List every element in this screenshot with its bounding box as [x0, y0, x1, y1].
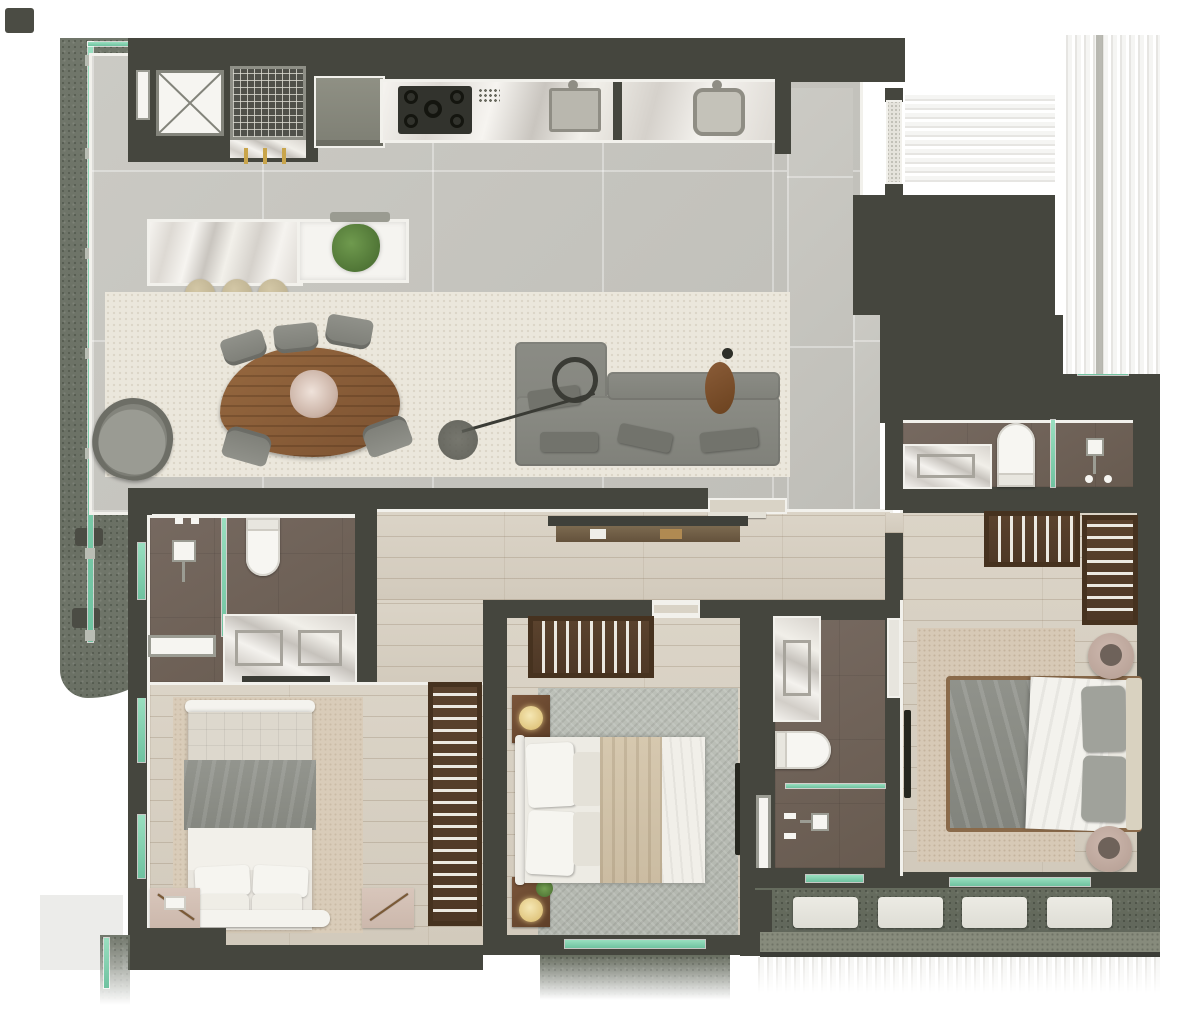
core-wall-block-b	[880, 315, 1063, 423]
bed1-quilt	[188, 712, 312, 762]
balcony-ledge	[760, 932, 1160, 952]
bedroom1-window	[138, 698, 145, 762]
bed2-pillow-small	[573, 812, 603, 866]
bed3-pillow	[1081, 685, 1127, 752]
master-tv	[904, 710, 911, 798]
hall-console-top	[548, 516, 748, 526]
table-lamp	[519, 706, 543, 730]
kitchen-sink-2	[693, 88, 745, 136]
bedroom2-west-wall	[483, 600, 507, 955]
kitchen-east-wall	[775, 56, 791, 154]
living-south-wall	[128, 488, 708, 514]
kitchen-tall-cabinet	[316, 78, 383, 146]
wall-niche	[136, 70, 150, 120]
shower-valve	[191, 518, 199, 524]
bedroom2-window	[565, 940, 705, 948]
bed2-pillow-small	[573, 752, 603, 806]
ensuite2-door	[887, 618, 901, 698]
master-west-wall	[885, 533, 903, 600]
shower-valve	[175, 518, 183, 524]
cooktop-controls	[478, 88, 500, 104]
bed1-duvet	[188, 828, 312, 870]
bed2-pillow	[525, 742, 576, 808]
fade-band-right	[1063, 35, 1160, 374]
round-side-table	[1088, 633, 1134, 679]
kitchen-sink-1	[549, 88, 601, 132]
lounger	[1047, 897, 1112, 928]
bed3-pillow	[1081, 755, 1127, 822]
bed2-headboard	[515, 735, 525, 885]
shower-head	[811, 813, 829, 831]
shower-fixture	[172, 540, 196, 562]
lounger	[793, 897, 858, 928]
entry-door	[886, 100, 902, 184]
decor-sphere	[722, 348, 733, 359]
counter-divider-wall	[613, 82, 622, 140]
ensuite2-vanity	[775, 618, 819, 720]
fade-band-right-line	[1096, 35, 1103, 374]
sofa-backrest	[607, 372, 780, 400]
table-flowers	[290, 370, 338, 418]
table-lamp	[519, 898, 543, 922]
bedroom1-south-wall-b	[226, 945, 483, 970]
hall-extension-floor	[375, 600, 483, 688]
island-marble	[150, 222, 300, 283]
cooktop	[398, 86, 472, 134]
bed2-throw	[600, 737, 662, 883]
toilet-tank	[997, 473, 1035, 487]
bedroom2-door-threshold	[652, 603, 700, 615]
shower-glass-screen	[786, 784, 885, 788]
bed2-duvet	[662, 737, 705, 883]
double-vanity	[225, 616, 355, 682]
shower-head	[1086, 438, 1104, 456]
faucet-1	[568, 80, 578, 90]
bedroom2-north-wall-b	[700, 600, 740, 618]
corridor-floor	[787, 88, 853, 518]
lounger	[878, 897, 943, 928]
bed1-pillow	[194, 865, 250, 898]
lounger	[962, 897, 1027, 928]
corner-wall-fragment	[5, 8, 34, 33]
shower-valve	[784, 833, 796, 839]
round-side-table	[1086, 826, 1132, 872]
facade-glass-top	[88, 42, 128, 46]
sofa-pillow	[540, 432, 598, 452]
core-wall-block-a	[853, 195, 1055, 315]
stub-glass	[104, 938, 109, 988]
arc-floor-lamp-shade	[552, 357, 598, 403]
barbecue-grill	[230, 66, 306, 140]
shower-niche	[756, 795, 771, 875]
bed1-headboard	[190, 910, 330, 927]
shower-valve	[1085, 475, 1093, 483]
hall-console-body	[556, 526, 740, 542]
toilet-tank	[775, 731, 787, 769]
bed1-pillow	[252, 865, 308, 898]
shower-glass-screen	[1051, 420, 1055, 487]
bathroom1-east-wall	[355, 500, 377, 688]
bathroom3-vanity	[905, 446, 990, 487]
bedside-mat	[362, 888, 414, 928]
bed3-headboard	[1126, 678, 1142, 830]
dining-chair	[273, 322, 320, 354]
oval-side-table	[705, 362, 735, 414]
shower-valve	[784, 813, 796, 819]
bedroom1-south-wall-a	[128, 928, 226, 970]
bedroom2-balcony-ledge	[540, 955, 730, 1000]
bathroom1-door-leaf	[242, 676, 330, 683]
bed2-pillow	[525, 810, 576, 876]
shower-stem	[1093, 456, 1096, 474]
shower-stem	[182, 562, 185, 582]
bedroom1-window	[138, 815, 145, 878]
bed1-gray-blanket	[184, 760, 316, 830]
master-doorway	[885, 513, 903, 533]
ensuite2-window	[806, 875, 863, 882]
master-wardrobe-a	[984, 511, 1080, 567]
arc-floor-lamp-base	[438, 420, 478, 460]
ensuite2-north-wall	[740, 600, 903, 620]
fade-band-bottom	[755, 957, 1160, 993]
grill-counter	[230, 140, 306, 158]
master-window	[950, 878, 1090, 886]
faucet-2	[712, 80, 722, 90]
bedside-mat	[150, 888, 200, 928]
bedroom2-wardrobe	[528, 616, 654, 678]
floor-plan	[0, 0, 1200, 1010]
terrace-planter	[72, 608, 100, 628]
bedroom1-wardrobe	[428, 682, 482, 926]
master-wardrobe-b	[1082, 515, 1138, 625]
island-tray	[330, 212, 390, 222]
wall-niche	[148, 635, 216, 657]
toilet-tank	[246, 518, 280, 531]
bathroom1-window	[138, 543, 145, 599]
shower-valve	[1104, 475, 1112, 483]
duct-shaft-x	[156, 70, 224, 136]
fade-band-top-right	[905, 95, 1055, 185]
corridor-floor-wide	[853, 313, 880, 512]
shower-arm	[800, 820, 812, 823]
